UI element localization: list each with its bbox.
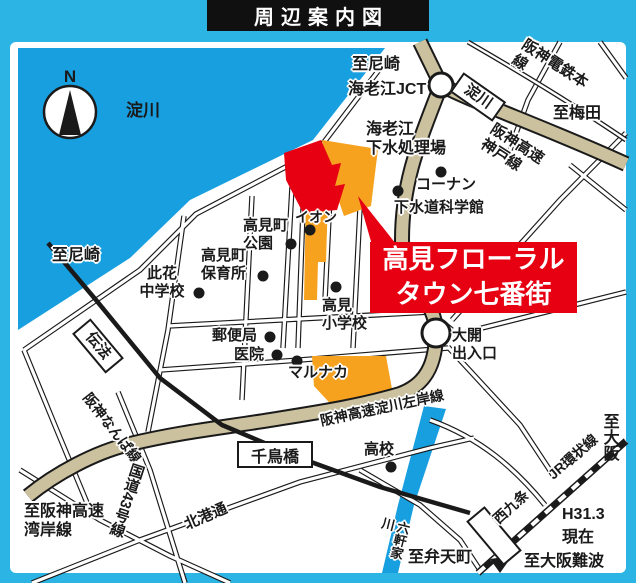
konohana-jhs-dot (194, 288, 205, 299)
map-date-note: H31.3 現在 (562, 503, 605, 549)
to-osaka-label: 至大阪 (599, 413, 618, 461)
ebie-jct-label: 海老江JCT (348, 80, 426, 99)
yodogawa-river-label: 淀川 (126, 101, 160, 121)
chidoribashi-bridge-label: 千鳥橋 (237, 441, 313, 468)
to-amagasaki-west-label: 至尼崎 (52, 246, 100, 265)
to-amagasaki-north-label: 至尼崎 (352, 55, 400, 74)
high-school-dot (386, 462, 397, 473)
sewer-museum-label: 下水道科学館 (394, 199, 484, 217)
takami-es-label: 高見 小学校 (322, 297, 367, 333)
takami-nursery-dot (258, 271, 269, 282)
konohana-jhs-label: 此花 中学校 (136, 265, 188, 301)
compass (44, 86, 96, 138)
to-wangan-label: 至阪神高速 湾岸線 (24, 502, 104, 540)
ebie-plant-label: 海老江 下水処理場 (366, 120, 446, 158)
area-guide-map: 周辺案内図 N 淀川 六軒家川 至尼崎 至尼崎 至梅田 至大阪 至阪神高速 湾岸… (0, 0, 636, 583)
takami-es-dot (331, 282, 342, 293)
page-title: 周辺案内図 (207, 0, 429, 31)
marunaka-label: マルナカ (288, 364, 348, 382)
high-school-label: 高校 (364, 441, 394, 459)
aeon-dot (305, 225, 316, 236)
sewer-museum-dot (393, 186, 404, 197)
clinic-label: 医院 (234, 346, 264, 364)
daikai-exit-circle (422, 319, 450, 347)
ebie-jct-circle (429, 73, 453, 97)
to-bentencho-label: 至弁天町 (408, 548, 472, 567)
post-office-label: 郵便局 (212, 327, 257, 345)
takami-nursery-label: 高見町 保育所 (201, 247, 246, 283)
site-callout-box: 高見フローラル タウン七番街 (370, 242, 577, 313)
daikai-exit-label: 大開 出入口 (452, 327, 497, 363)
compass-north-label: N (64, 67, 76, 87)
aeon-label: イオン (295, 209, 337, 226)
to-osaka-namba-label: 至大阪難波 (524, 552, 604, 571)
post-office-dot (265, 332, 276, 343)
takami-park-label: 高見町 公園 (243, 217, 288, 253)
clinic-dot (272, 350, 283, 361)
konan-label: コーナン (416, 176, 476, 194)
